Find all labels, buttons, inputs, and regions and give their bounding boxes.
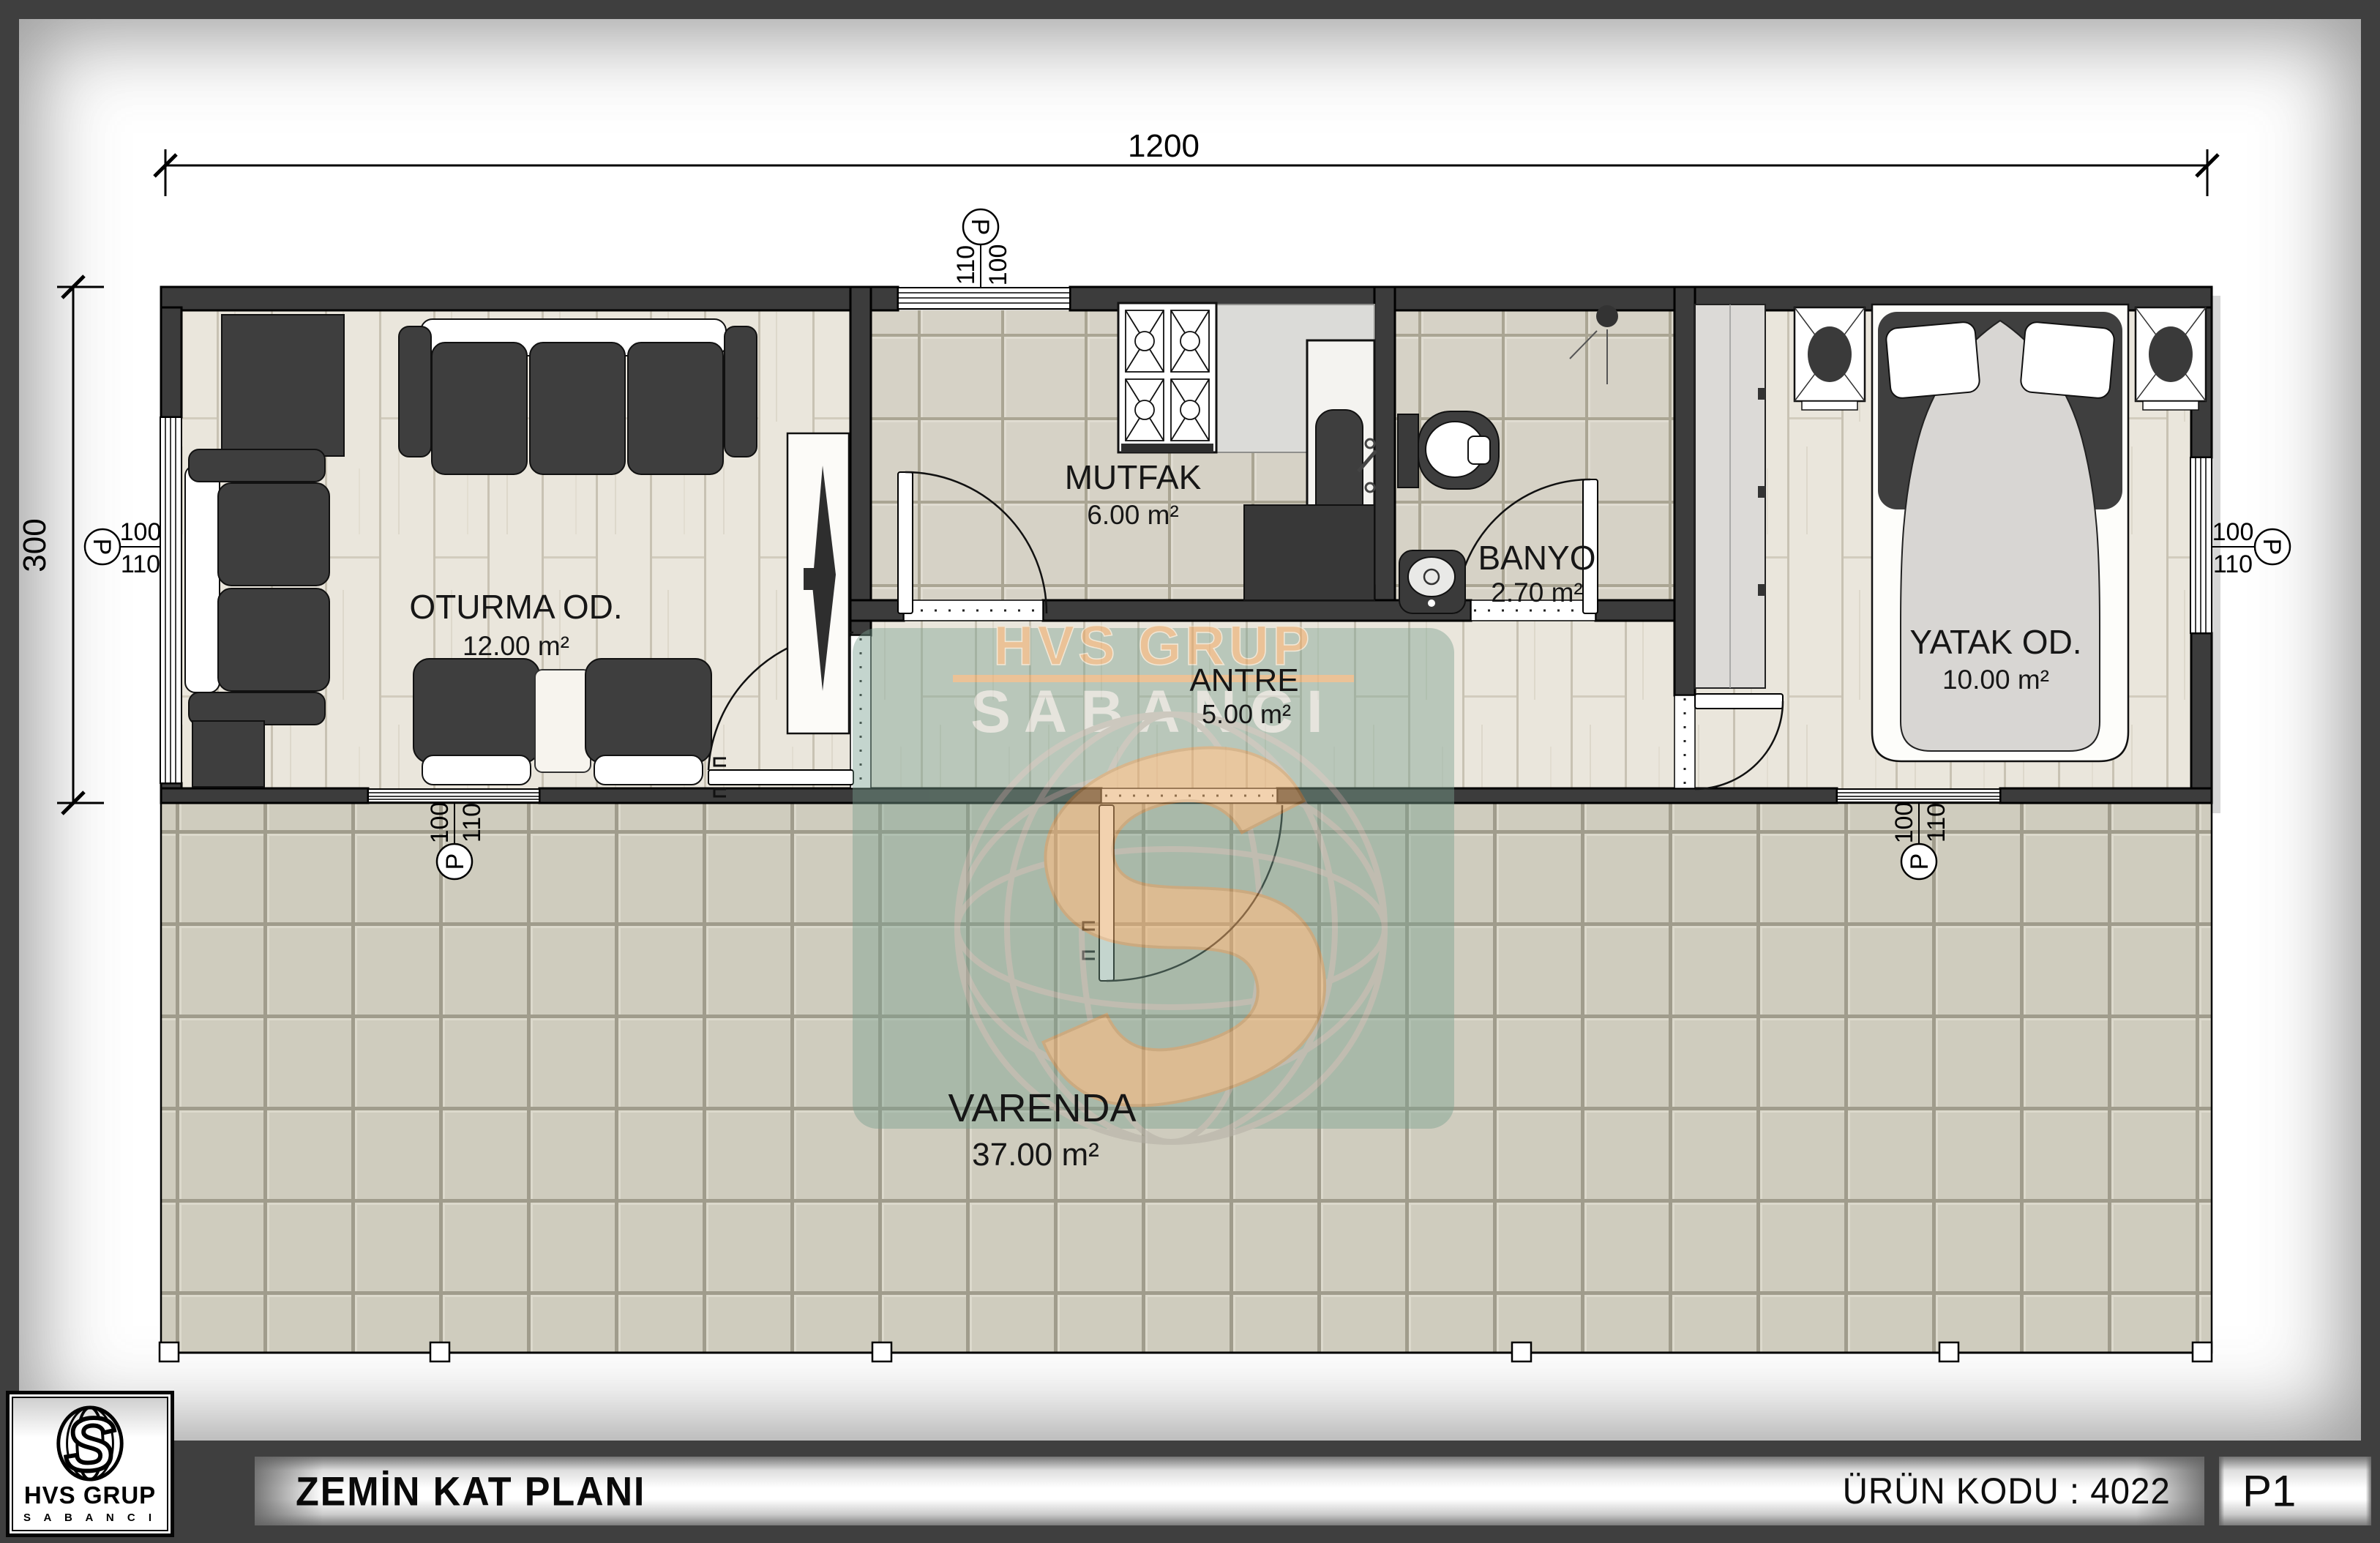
dimension-height-label: 300 (17, 518, 53, 572)
marker-living-left-window: P 100 110 (85, 518, 161, 578)
company-globe-logo-icon: S (35, 1404, 145, 1483)
nightstand-left (1795, 307, 1865, 410)
marker-width: 100 (2212, 518, 2254, 546)
marker-width: 100 (1890, 802, 1918, 844)
page-code-box: P1 (2219, 1457, 2371, 1525)
window-right-wall (2190, 457, 2212, 633)
page-code: P1 (2242, 1466, 2296, 1517)
window-kitchen-top (898, 288, 1070, 309)
company-logo-inner: S HVS GRUP S A B A N C I (12, 1397, 168, 1531)
company-name: HVS GRUP (24, 1483, 156, 1509)
label-bedroom-area: 10.00 m² (1942, 665, 2049, 695)
tv-unit (787, 433, 849, 733)
pillow-right (2020, 321, 2115, 399)
marker-kitchen-window: P 110 100 (952, 209, 1012, 287)
window-living-bottom (368, 789, 539, 802)
company-subtitle: S A B A N C I (23, 1512, 157, 1524)
armchair-right (585, 659, 711, 785)
plan-canvas: HVS GRUP SABANCI S OTURMA OD. 12.00 m² M… (0, 0, 2380, 1543)
marker-bedroom-right-window: P 100 110 (2212, 518, 2290, 578)
wardrobe (1695, 305, 1765, 688)
label-bedroom: YATAK OD. (1909, 623, 2081, 661)
marker-letter: P (441, 853, 469, 870)
wall-hall-seg1 (850, 600, 904, 621)
title-strip: ZEMİN KAT PLANI ÜRÜN KODU : 4022 (255, 1457, 2204, 1525)
post (430, 1342, 449, 1361)
marker-letter: P (2258, 539, 2286, 556)
label-hallway-area: 5.00 m² (1202, 699, 1291, 729)
label-living-room: OTURMA OD. (409, 588, 622, 626)
post (872, 1342, 891, 1361)
label-veranda: VARENDA (948, 1086, 1136, 1130)
refrigerator (1244, 505, 1374, 600)
label-bathroom: BANYO (1478, 539, 1595, 577)
label-veranda-area: 37.00 m² (972, 1137, 1099, 1173)
bathroom-sink (1399, 550, 1465, 613)
marker-height: 110 (458, 803, 486, 843)
post (1512, 1342, 1531, 1361)
marker-letter: P (1906, 853, 1934, 870)
wall-living-kitchen (850, 287, 871, 635)
post (2193, 1342, 2212, 1361)
post (1939, 1342, 1958, 1361)
dimension-width-label: 1200 (1128, 128, 1200, 164)
product-code: ÜRÜN KODU : 4022 (1843, 1470, 2171, 1512)
pillow-left (1885, 321, 1980, 399)
side-table-dark (192, 721, 264, 787)
wall-left-upper (161, 307, 182, 417)
marker-height: 100 (984, 244, 1012, 286)
wall-bottom-seg4 (2000, 788, 2212, 803)
post (160, 1342, 179, 1361)
marker-width: 110 (952, 245, 980, 285)
label-living-room-area: 12.00 m² (463, 631, 569, 661)
toilet (1398, 411, 1499, 489)
coffee-table (535, 670, 591, 772)
label-kitchen-area: 6.00 m² (1087, 500, 1178, 530)
company-logo-box: S HVS GRUP S A B A N C I (6, 1391, 174, 1537)
label-kitchen: MUTFAK (1065, 458, 1202, 496)
marker-width: 100 (120, 518, 162, 546)
wall-kitchen-bath (1374, 287, 1395, 621)
wall-top-left-segment (161, 287, 898, 310)
window-left-wall (160, 417, 182, 783)
stove (1118, 303, 1216, 452)
wall-right-lower (2191, 633, 2212, 803)
marker-height: 110 (1923, 803, 1950, 843)
plan-title: ZEMİN KAT PLANI (296, 1468, 645, 1515)
marker-height: 110 (2213, 550, 2253, 578)
marker-width: 100 (426, 802, 454, 844)
floor-plan-sheet: { "sheet": { "dimensions": { "width_labe… (0, 0, 2380, 1543)
window-bedroom-bottom (1837, 789, 2000, 802)
armchair-left (413, 659, 539, 785)
label-hallway: ANTRE (1189, 662, 1298, 698)
marker-letter: P (966, 219, 994, 236)
nightstand-right (2136, 307, 2206, 410)
marker-letter: P (88, 539, 116, 556)
dimension-top: 1200 (154, 128, 2218, 196)
wall-bottom-seg1 (161, 788, 368, 803)
sofa-three-seat (399, 319, 757, 474)
wall-hall-bedroom (1674, 287, 1695, 695)
cabinet (222, 315, 344, 456)
marker-height: 110 (121, 550, 160, 578)
svg-text:S: S (65, 1404, 115, 1483)
stove-knobs (1121, 444, 1213, 452)
label-bathroom-area: 2.70 m² (1491, 578, 1582, 608)
